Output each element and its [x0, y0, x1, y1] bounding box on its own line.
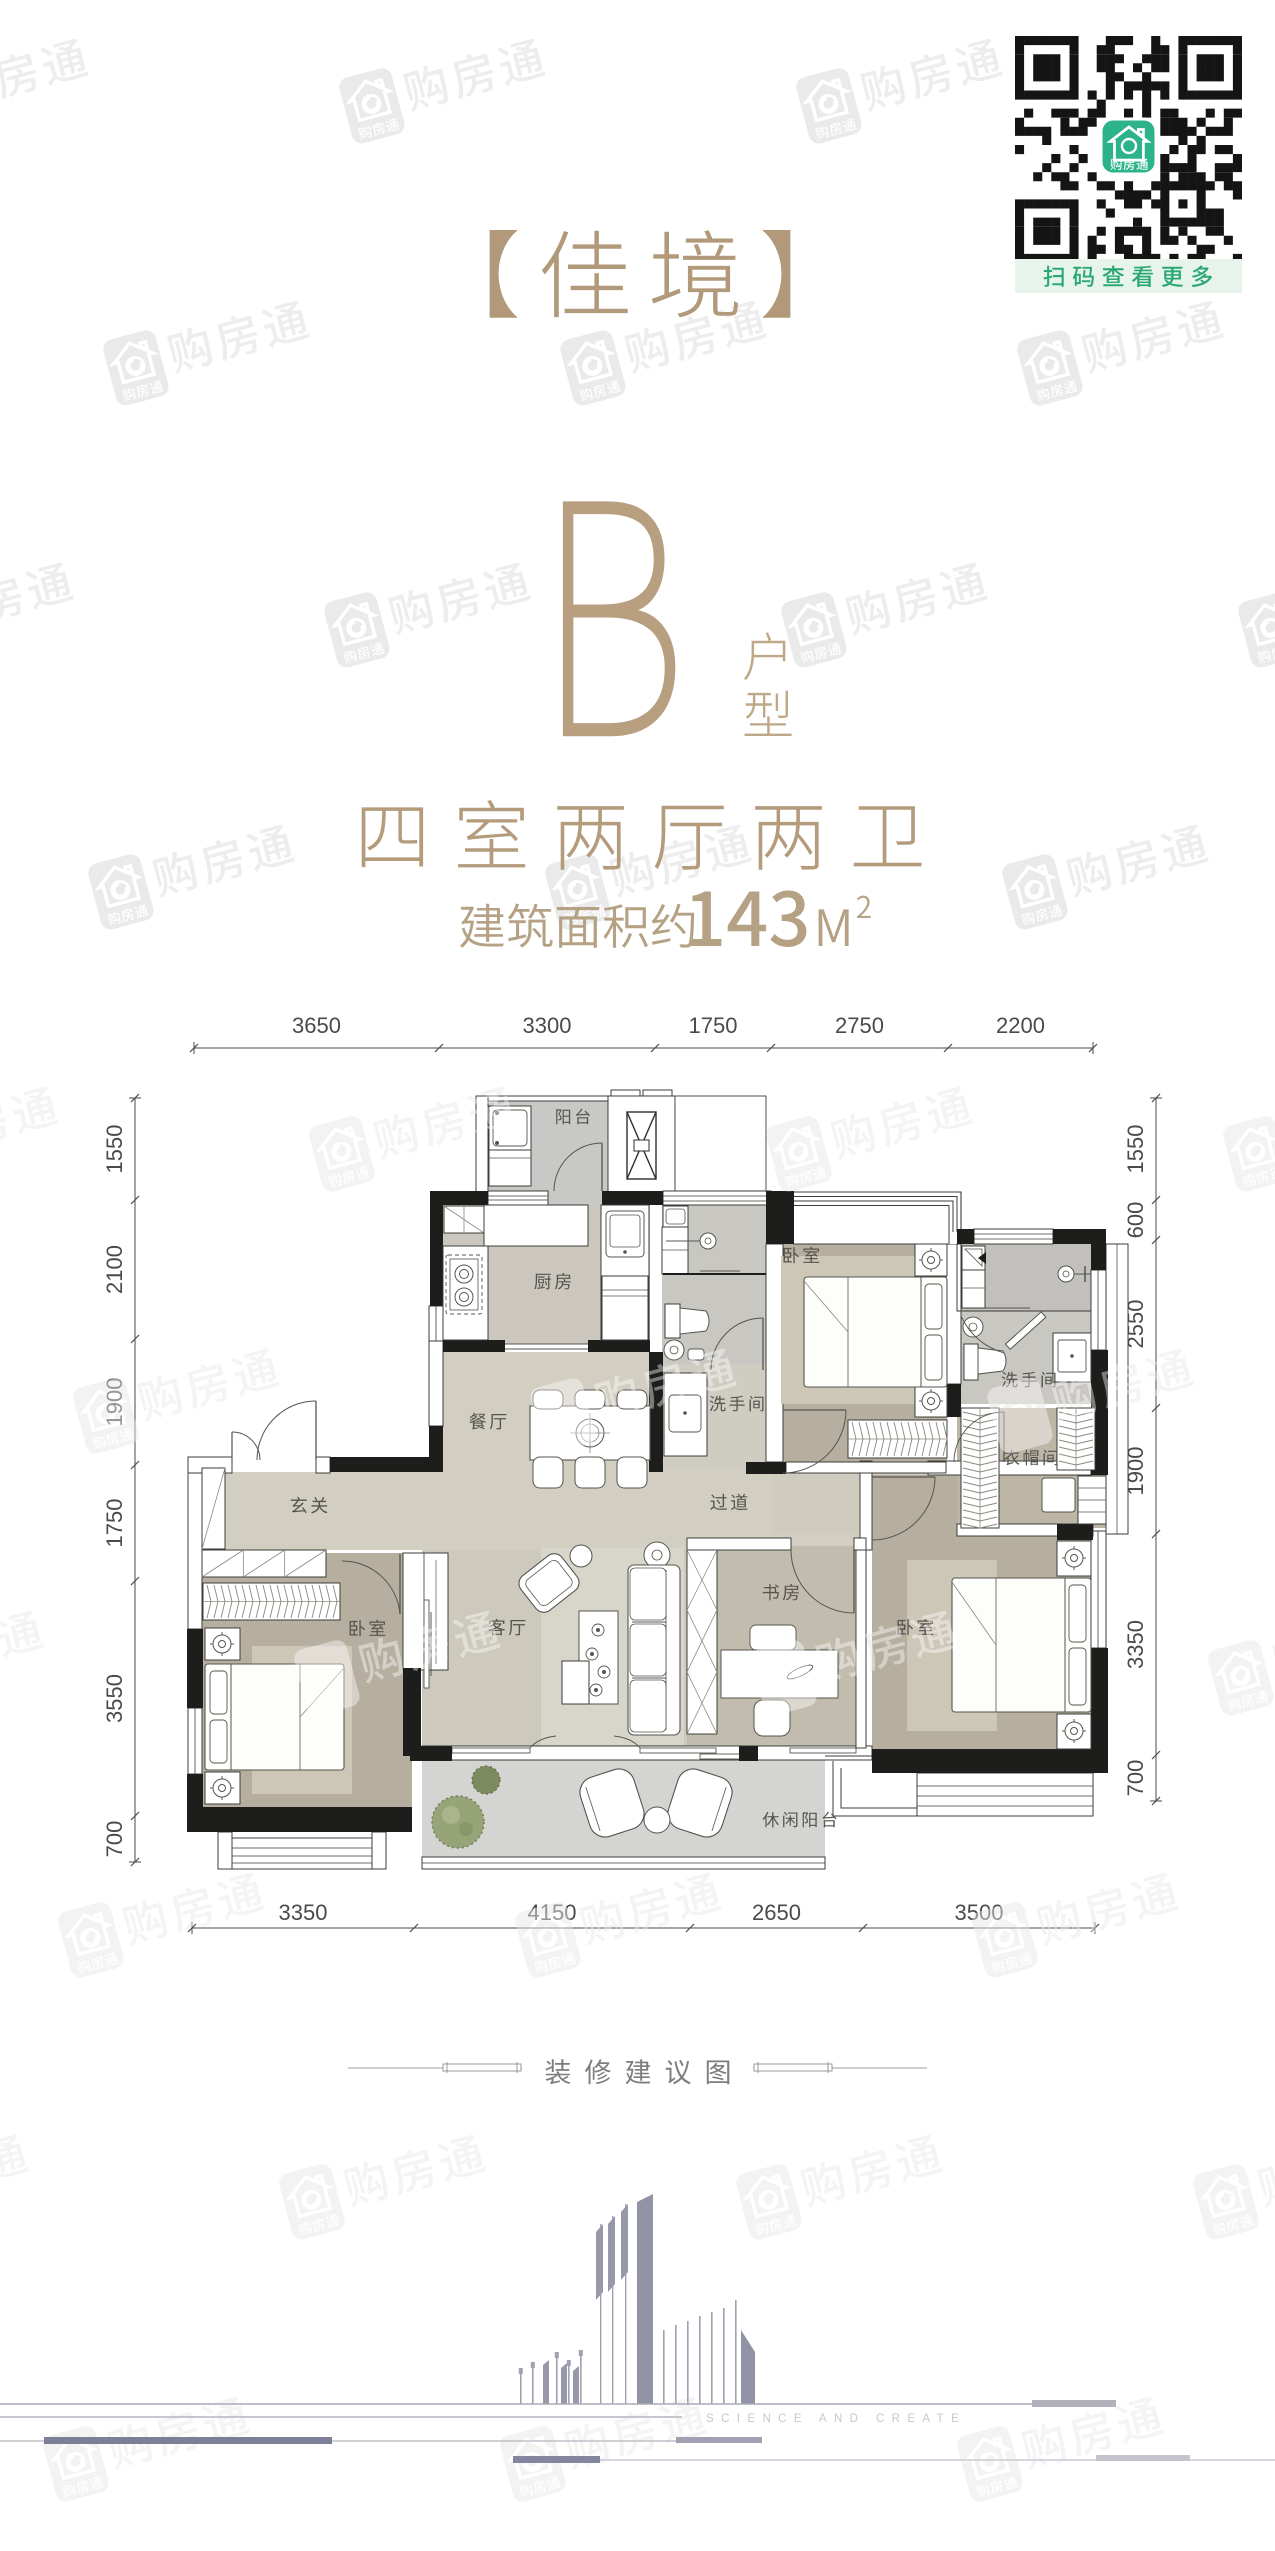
- svg-text:3350: 3350: [1123, 1620, 1148, 1669]
- svg-text:3300: 3300: [523, 1013, 572, 1038]
- svg-text:3350: 3350: [279, 1900, 328, 1925]
- svg-text:SCIENCE AND CREATE: SCIENCE AND CREATE: [706, 2413, 966, 2425]
- svg-text:3550: 3550: [102, 1674, 127, 1723]
- svg-text:1550: 1550: [102, 1125, 127, 1174]
- svg-text:2750: 2750: [835, 1013, 884, 1038]
- svg-text:1900: 1900: [1123, 1447, 1148, 1496]
- svg-text:1750: 1750: [102, 1499, 127, 1548]
- svg-text:2200: 2200: [996, 1013, 1045, 1038]
- svg-text:700: 700: [1123, 1760, 1148, 1797]
- svg-text:1750: 1750: [689, 1013, 738, 1038]
- svg-text:3650: 3650: [292, 1013, 341, 1038]
- svg-text:2650: 2650: [752, 1900, 801, 1925]
- svg-text:2100: 2100: [102, 1245, 127, 1294]
- svg-text:2550: 2550: [1123, 1300, 1148, 1349]
- svg-text:600: 600: [1123, 1202, 1148, 1239]
- svg-text:1550: 1550: [1123, 1125, 1148, 1174]
- svg-text:700: 700: [102, 1821, 127, 1858]
